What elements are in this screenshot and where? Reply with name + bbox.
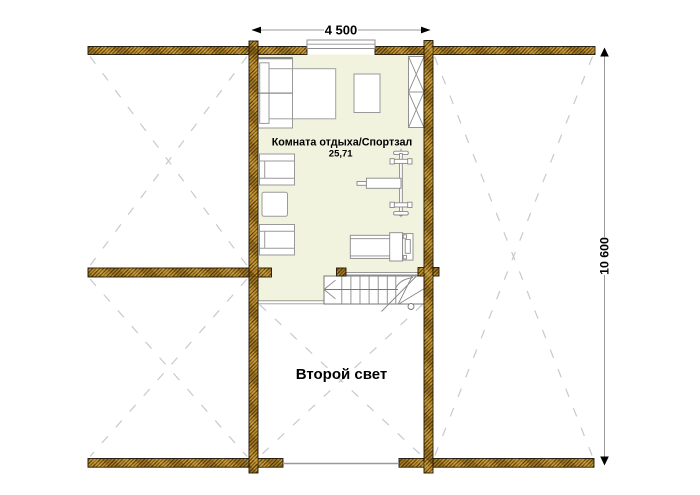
- svg-text:Комната отдыха/Спортзал: Комната отдыха/Спортзал: [272, 136, 413, 148]
- svg-text:25,71: 25,71: [329, 149, 353, 160]
- svg-text:4 500: 4 500: [325, 23, 358, 38]
- svg-text:Второй свет: Второй свет: [296, 366, 388, 383]
- svg-text:10 600: 10 600: [598, 237, 612, 275]
